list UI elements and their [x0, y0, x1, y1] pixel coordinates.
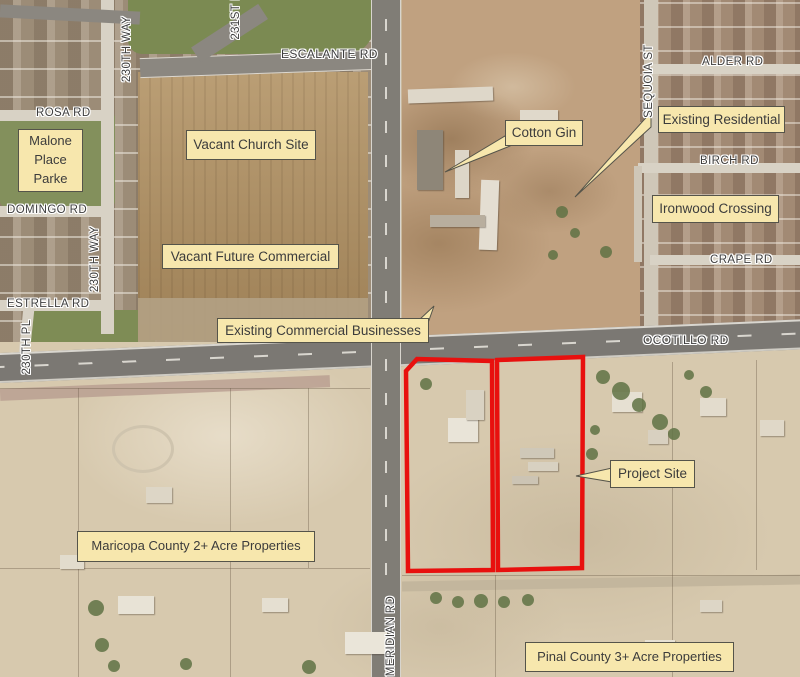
label-vacant-future-commercial: Vacant Future Commercial — [162, 244, 339, 269]
street-label-ocotillo-rd: OCOTILLO RD — [643, 333, 729, 347]
label-project-site: Project Site — [610, 460, 695, 488]
street-label-231st-pl: 231ST P — [230, 0, 242, 40]
street-label-sequoia-st: SEQUOIA ST — [643, 44, 655, 118]
existing-residential-leader-line — [575, 112, 651, 197]
street-label-rosa-rd: ROSA RD — [36, 107, 91, 119]
street-label-escalante-rd: ESCALANTE RD — [281, 47, 378, 61]
label-cotton-gin: Cotton Gin — [505, 120, 583, 146]
label-existing-residential: Existing Residential — [658, 106, 785, 133]
street-label-crape-rd: CRAPE RD — [710, 254, 773, 266]
street-label-meridian-rd: MERIDIAN RD — [385, 596, 397, 676]
label-maricopa-county-properties: Maricopa County 2+ Acre Properties — [77, 531, 315, 562]
project-site-boundary-east — [497, 357, 583, 570]
street-label-birch-rd: BIRCH RD — [700, 155, 759, 167]
street-label-domingo-rd: DOMINGO RD — [7, 204, 87, 216]
label-ironwood-crossing: Ironwood Crossing — [652, 195, 779, 223]
project-site-boundary-west — [406, 359, 493, 571]
street-label-230th-way-south: 230TH WAY — [89, 226, 101, 292]
street-label-230th-pl: 230TH PL — [21, 320, 33, 375]
label-pinal-county-properties: Pinal County 3+ Acre Properties — [525, 642, 734, 672]
aerial-site-map: Malone Place Parke Vacant Church Site Co… — [0, 0, 800, 677]
street-label-estrella-rd: ESTRELLA RD — [7, 298, 89, 310]
street-label-alder-rd: ALDER RD — [702, 56, 763, 68]
street-label-230th-way-north: 230TH WAY — [121, 16, 133, 82]
cotton-gin-leader-line — [445, 136, 510, 172]
label-vacant-church-site: Vacant Church Site — [186, 130, 316, 160]
label-existing-commercial-businesses: Existing Commercial Businesses — [217, 318, 429, 343]
label-malone-place-parke: Malone Place Parke — [18, 129, 83, 192]
